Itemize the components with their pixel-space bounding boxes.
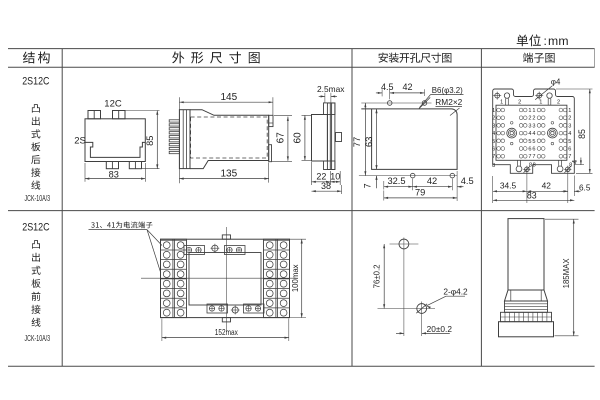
svg-text:152max: 152max [215,327,239,337]
svg-text:4: 4 [568,131,571,137]
svg-text:2S12C: 2S12C [22,221,50,233]
svg-text:79: 79 [415,187,425,197]
svg-text:φ4: φ4 [551,78,561,87]
svg-text:83: 83 [109,170,119,180]
svg-text:3: 3 [568,123,571,129]
svg-text:8: 8 [533,163,536,169]
svg-text:42: 42 [427,176,437,186]
svg-text:7: 7 [528,154,531,160]
svg-text:4.5: 4.5 [461,176,474,186]
svg-text:20±0.2: 20±0.2 [427,324,453,334]
svg-text:185MAX: 185MAX [562,258,571,289]
svg-text:1: 1 [500,100,503,106]
svg-text:3: 3 [532,123,535,129]
svg-text:5: 5 [528,139,531,145]
svg-text:2S12C: 2S12C [22,76,50,88]
svg-text:7: 7 [568,154,571,160]
svg-text:6: 6 [528,147,531,153]
svg-text:1: 1 [528,108,531,114]
svg-text:77: 77 [352,137,363,148]
svg-text:32.5: 32.5 [387,176,405,186]
svg-text:mm: mm [548,34,569,48]
svg-text:145: 145 [220,92,237,103]
svg-text:1: 1 [539,100,542,106]
svg-text:4: 4 [492,131,495,137]
svg-text:5: 5 [492,139,495,145]
svg-text:42: 42 [402,82,412,92]
svg-text:7: 7 [362,183,372,188]
svg-text:JCK-10A/3: JCK-10A/3 [25,334,51,343]
svg-text:67: 67 [276,132,287,144]
svg-text:76±0.2: 76±0.2 [373,265,382,289]
svg-text:10: 10 [330,171,340,181]
svg-text:12C: 12C [104,99,122,110]
svg-text:RM2×2: RM2×2 [435,97,462,107]
svg-text:6: 6 [568,147,571,153]
svg-text:6: 6 [492,147,495,153]
svg-text:B6(φ3.2): B6(φ3.2) [432,85,463,95]
svg-text:4: 4 [528,131,531,137]
svg-text:3: 3 [492,123,495,129]
svg-text:2.5max: 2.5max [317,84,345,94]
svg-text:2: 2 [532,116,535,122]
svg-text:5: 5 [532,139,535,145]
svg-text:7: 7 [532,154,535,160]
svg-text:2: 2 [528,116,531,122]
svg-text:22: 22 [316,171,326,181]
svg-text:83: 83 [527,190,537,200]
svg-text:2: 2 [518,100,521,106]
svg-text:2: 2 [557,100,560,106]
svg-text:2S: 2S [74,135,86,146]
svg-text:2: 2 [492,116,495,122]
svg-text:85: 85 [145,136,155,146]
svg-text:100max: 100max [291,264,300,292]
svg-text:4: 4 [532,131,535,137]
svg-text:34.5: 34.5 [500,181,517,191]
svg-text:8: 8 [492,163,495,169]
svg-text:2: 2 [568,116,571,122]
svg-text:60: 60 [292,132,303,144]
svg-text::: : [544,34,547,48]
svg-text:5: 5 [568,139,571,145]
svg-text:38: 38 [321,181,331,191]
svg-text:3: 3 [528,123,531,129]
svg-text:2-φ4.2: 2-φ4.2 [443,287,468,297]
svg-text:135: 135 [220,168,237,179]
svg-text:42: 42 [542,181,552,191]
svg-text:1: 1 [532,108,535,114]
svg-text:1: 1 [568,108,571,114]
svg-text:63: 63 [364,137,375,148]
svg-text:4: 4 [572,160,579,164]
svg-text:6: 6 [532,147,535,153]
svg-text:JCK-10A/3: JCK-10A/3 [25,194,51,203]
svg-text:6.5: 6.5 [579,184,591,193]
svg-text:4.5: 4.5 [381,82,394,92]
svg-text:7: 7 [492,154,495,160]
svg-text:85: 85 [577,129,587,139]
svg-text:1: 1 [492,108,495,114]
